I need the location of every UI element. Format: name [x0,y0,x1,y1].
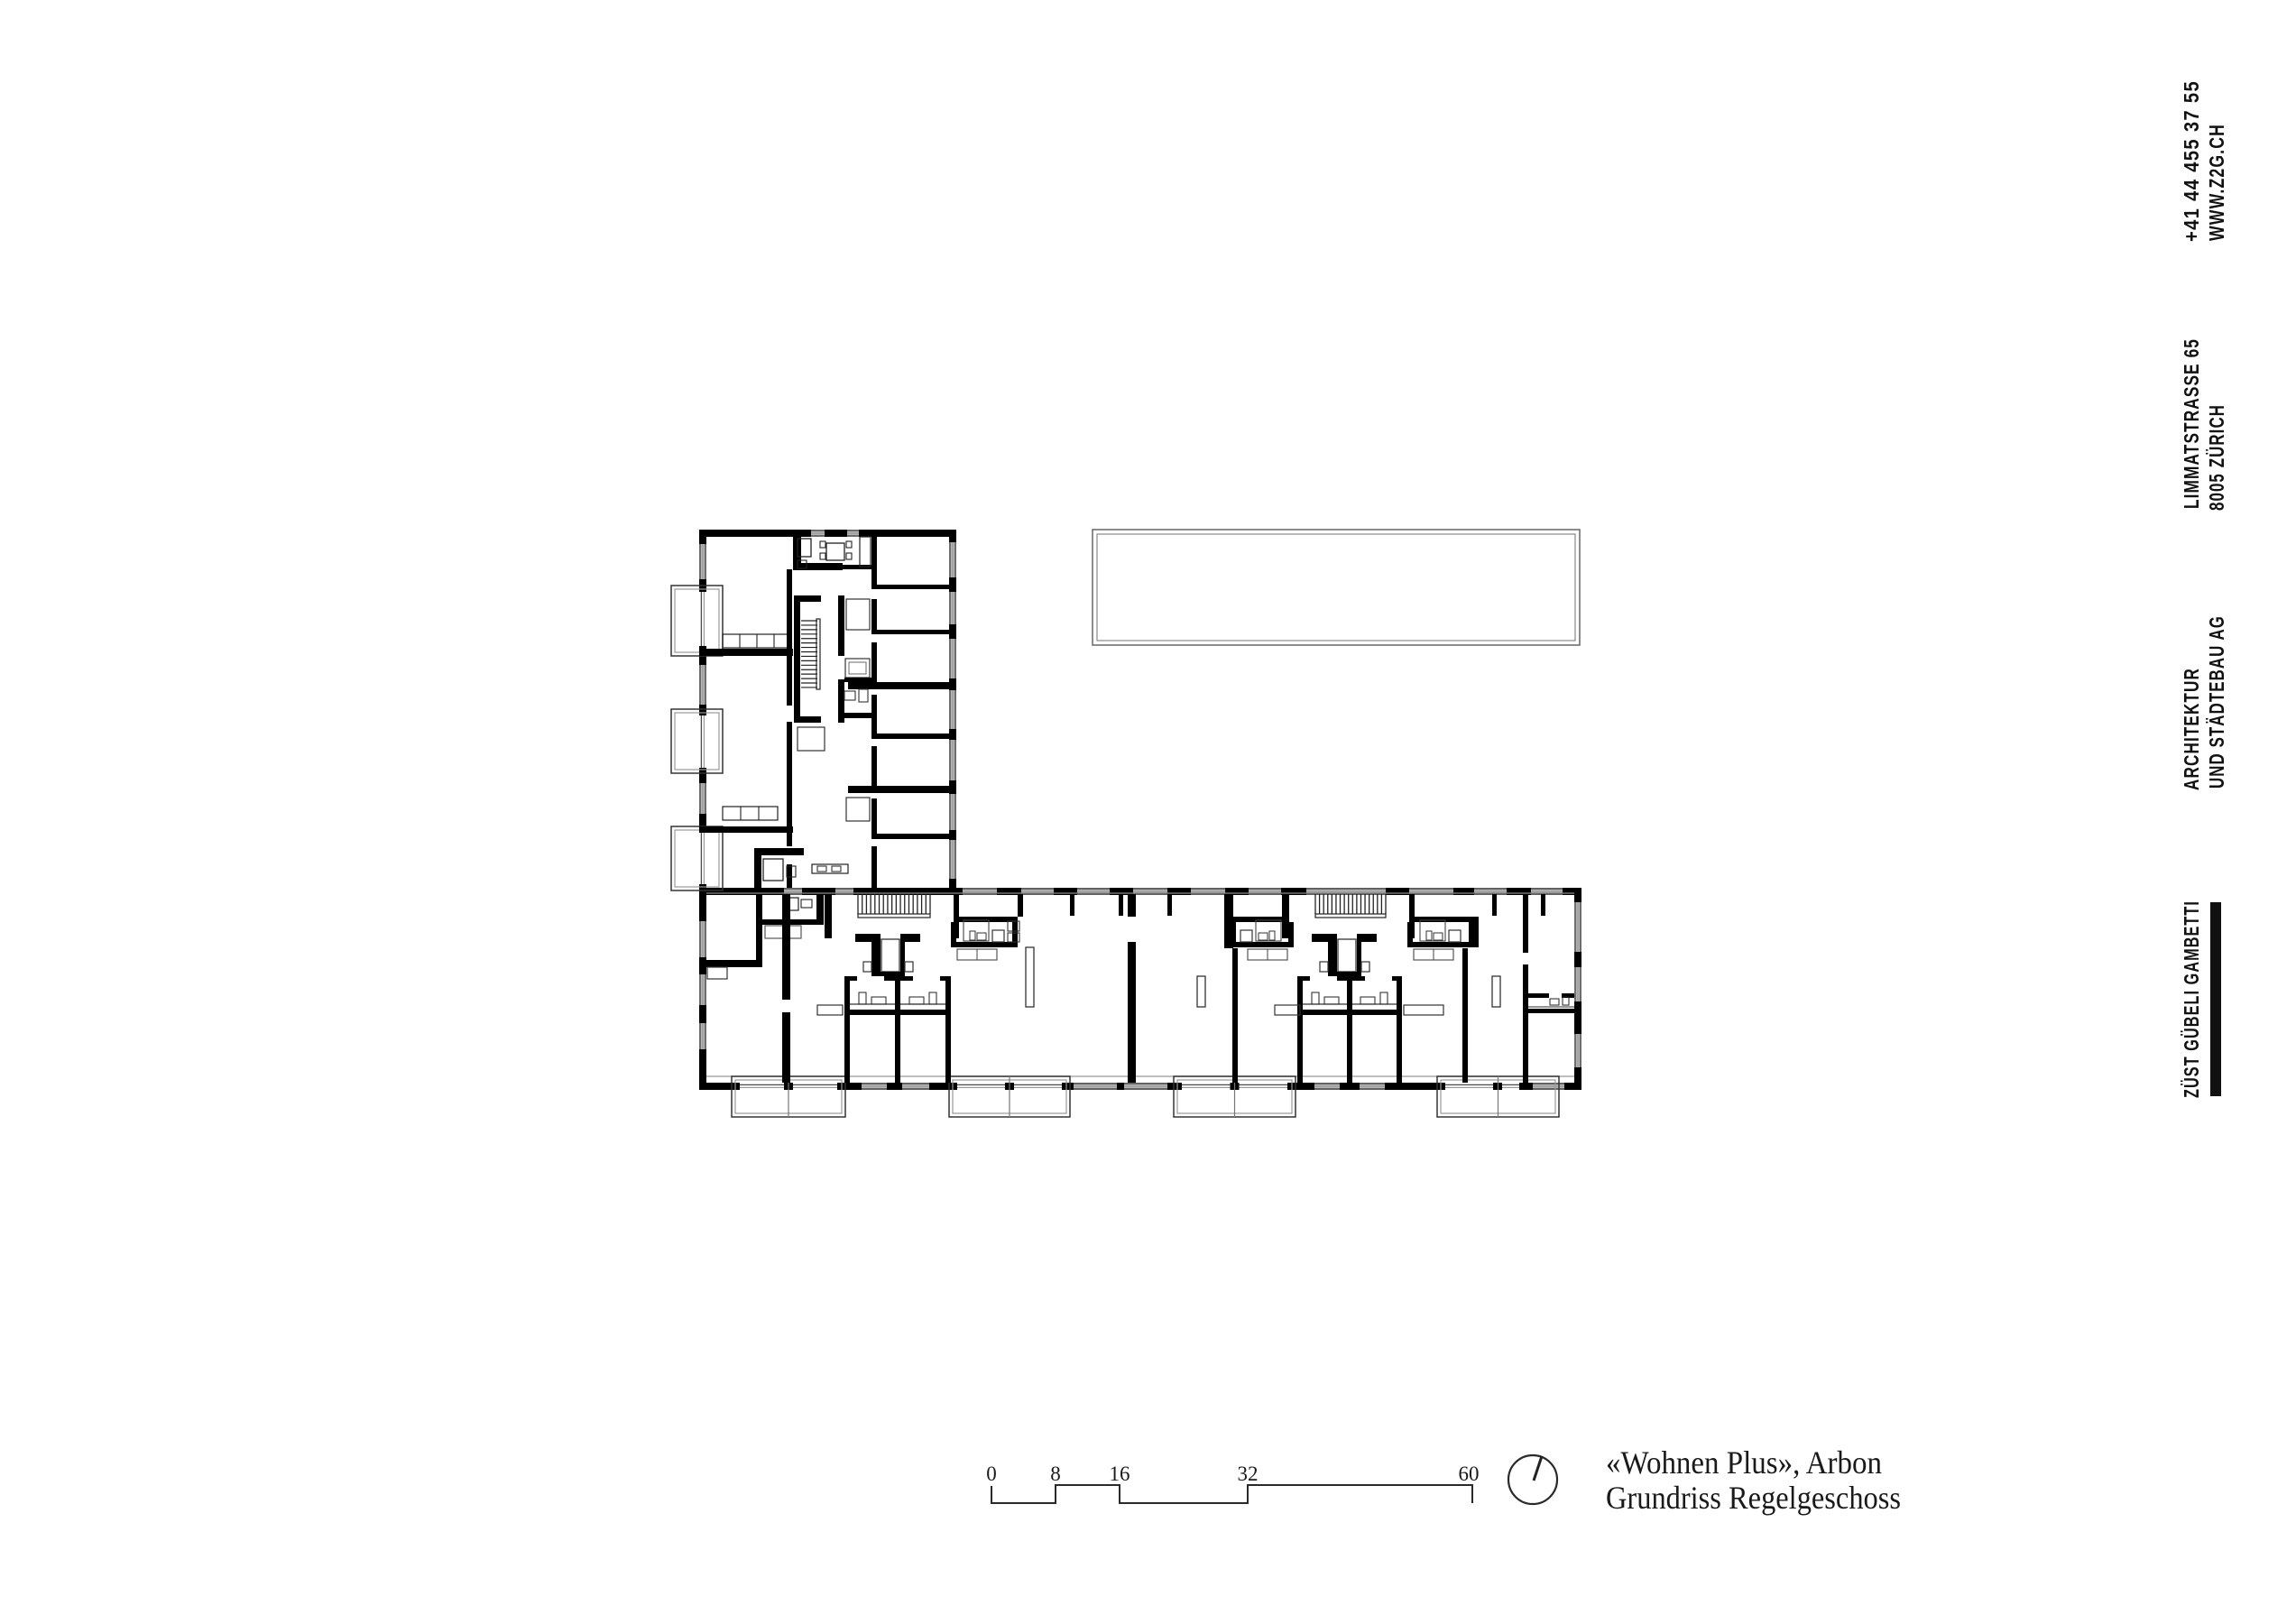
svg-text:8: 8 [1050,1463,1061,1485]
svg-text:60: 60 [1459,1463,1480,1485]
svg-text:«Wohnen Plus», Arbon: «Wohnen Plus», Arbon [1606,1444,1882,1481]
svg-text:Grundriss Regelgeschoss: Grundriss Regelgeschoss [1606,1480,1901,1516]
svg-text:ZÜST GÜBELI GAMBETTI: ZÜST GÜBELI GAMBETTI [2180,900,2203,1098]
svg-text:8005 ZÜRICH: 8005 ZÜRICH [2205,404,2228,511]
svg-text:UND STÄDTEBAU AG: UND STÄDTEBAU AG [2205,615,2228,789]
svg-text:LIMMATSTRASSE 65: LIMMATSTRASSE 65 [2180,338,2203,509]
svg-text:+41 44 455 37 55: +41 44 455 37 55 [2180,80,2203,242]
svg-text:32: 32 [1238,1463,1259,1485]
svg-text:16: 16 [1110,1463,1130,1485]
svg-text:0: 0 [986,1463,997,1485]
svg-text:ARCHITEKTUR: ARCHITEKTUR [2180,668,2203,790]
svg-text:WWW.Z2G.CH: WWW.Z2G.CH [2205,124,2228,241]
